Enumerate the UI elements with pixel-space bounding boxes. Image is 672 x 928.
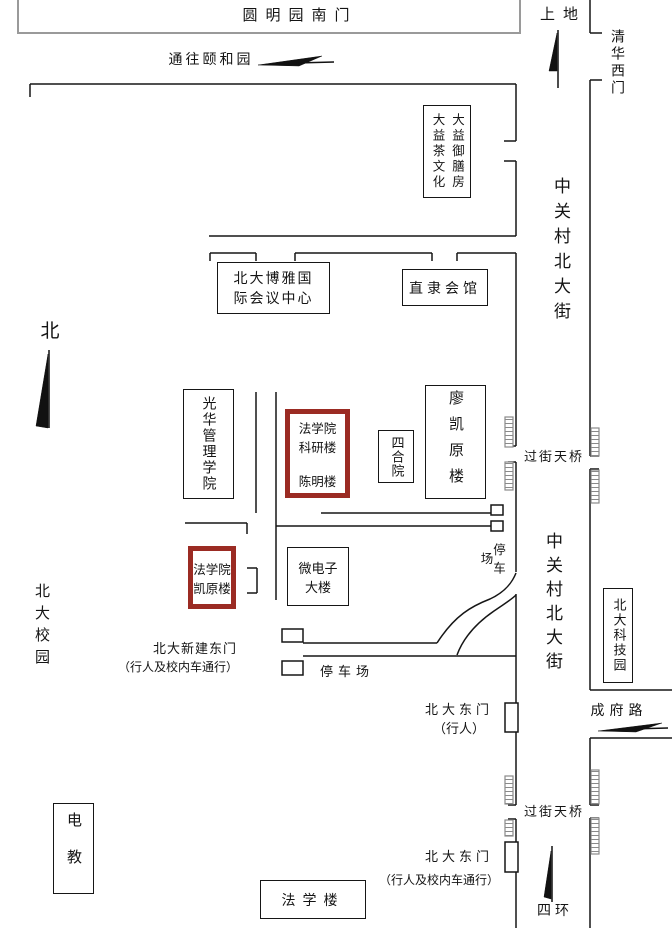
microelectronics-label-2: 大楼: [305, 577, 331, 596]
law-research-building-highlight: 法学院 科研楼 陈明楼: [285, 409, 350, 498]
yuanmingyuan-gate-label: 圆明园南门: [225, 6, 375, 24]
chengfu-road-label: 成府路: [589, 703, 649, 720]
east-gate-south-label: 北大东门: [422, 850, 496, 866]
chenming-building-label: 陈明楼: [299, 471, 337, 490]
direction-arrows: [36, 30, 668, 902]
new-east-gate-note: （行人及校内车通行）: [112, 660, 244, 674]
footbridge-label-north: 过街天桥: [520, 450, 588, 466]
summer-palace-arrow-icon: [258, 56, 322, 66]
microelectronics-label-1: 微电子: [298, 558, 337, 577]
law-kaiyuan-label-1: 法学院: [193, 559, 231, 578]
footbridge-label-south: 过街天桥: [520, 805, 588, 821]
law-building: 法学楼: [260, 880, 366, 919]
parking-label-vertical: 停车场: [479, 535, 504, 587]
law-research-label-1: 法学院: [299, 418, 337, 437]
pku-campus-label: 北大校园: [34, 582, 49, 672]
fourth-ring-label: 四环: [534, 903, 576, 920]
guanghua-school: 光华管理学院: [183, 389, 234, 499]
zhili-guild-hall-label: 直隶会馆: [409, 278, 481, 298]
east-gate-pedestrian-label: 北大东门: [422, 703, 496, 719]
siheyuan-building: 四合院: [378, 430, 414, 483]
east-gate-south-note: （行人及校内车通行）: [364, 873, 514, 887]
pku-science-park-label: 北大科技园: [612, 598, 625, 673]
zhili-guild-hall: 直隶会馆: [402, 269, 488, 306]
pku-science-park: 北大科技园: [603, 588, 633, 683]
zhongguancun-street-label-north: 中关村北大街: [551, 168, 568, 336]
dianjiao-building: 电教: [53, 803, 94, 894]
boya-conference-center: 北大博雅国 际会议中心: [217, 262, 330, 314]
parking-label-horizontal: 停车场: [318, 665, 376, 681]
law-kaiyuan-building-highlight: 法学院 凯原楼: [188, 546, 236, 609]
chengfu-arrow-icon: [598, 723, 662, 732]
zhongguancun-street-label-south: 中关村北大街: [543, 524, 560, 684]
boya-label-line2: 际会议中心: [234, 288, 314, 308]
east-gate-pedestrian-note: （行人）: [426, 722, 492, 738]
dayi-tea-culture-label: 大益茶文化: [431, 113, 444, 191]
dayi-building: 大益茶文化 大益御膳房: [423, 105, 471, 198]
dayi-kitchen-label: 大益御膳房: [451, 113, 464, 191]
north-label: 北: [36, 320, 64, 343]
siheyuan-label: 四合院: [390, 436, 403, 478]
qinghua-west-gate-label: 清华西门: [610, 24, 624, 102]
to-summer-palace-label: 通往颐和园: [163, 52, 259, 69]
boya-label-line1: 北大博雅国: [234, 268, 314, 288]
law-kaiyuan-label-2: 凯原楼: [193, 578, 231, 597]
liao-kaiyuan-building: 廖凯原楼: [425, 385, 486, 499]
shangdi-label: 上地: [540, 5, 582, 23]
law-research-label-2: 科研楼: [299, 437, 337, 456]
dianjiao-label: 电教: [66, 812, 81, 886]
law-building-label: 法学楼: [282, 890, 345, 910]
guanghua-label: 光华管理学院: [202, 396, 216, 492]
liao-kaiyuan-label: 廖凯原楼: [448, 390, 463, 494]
microelectronics-building: 微电子 大楼: [287, 547, 349, 606]
new-east-gate-label: 北大新建东门: [150, 642, 240, 658]
pku-east-gate-area-map: 圆明园南门 通往颐和园 上地 清华西门 中关村北大街 中关村北大街 大益茶文化 …: [0, 0, 672, 928]
